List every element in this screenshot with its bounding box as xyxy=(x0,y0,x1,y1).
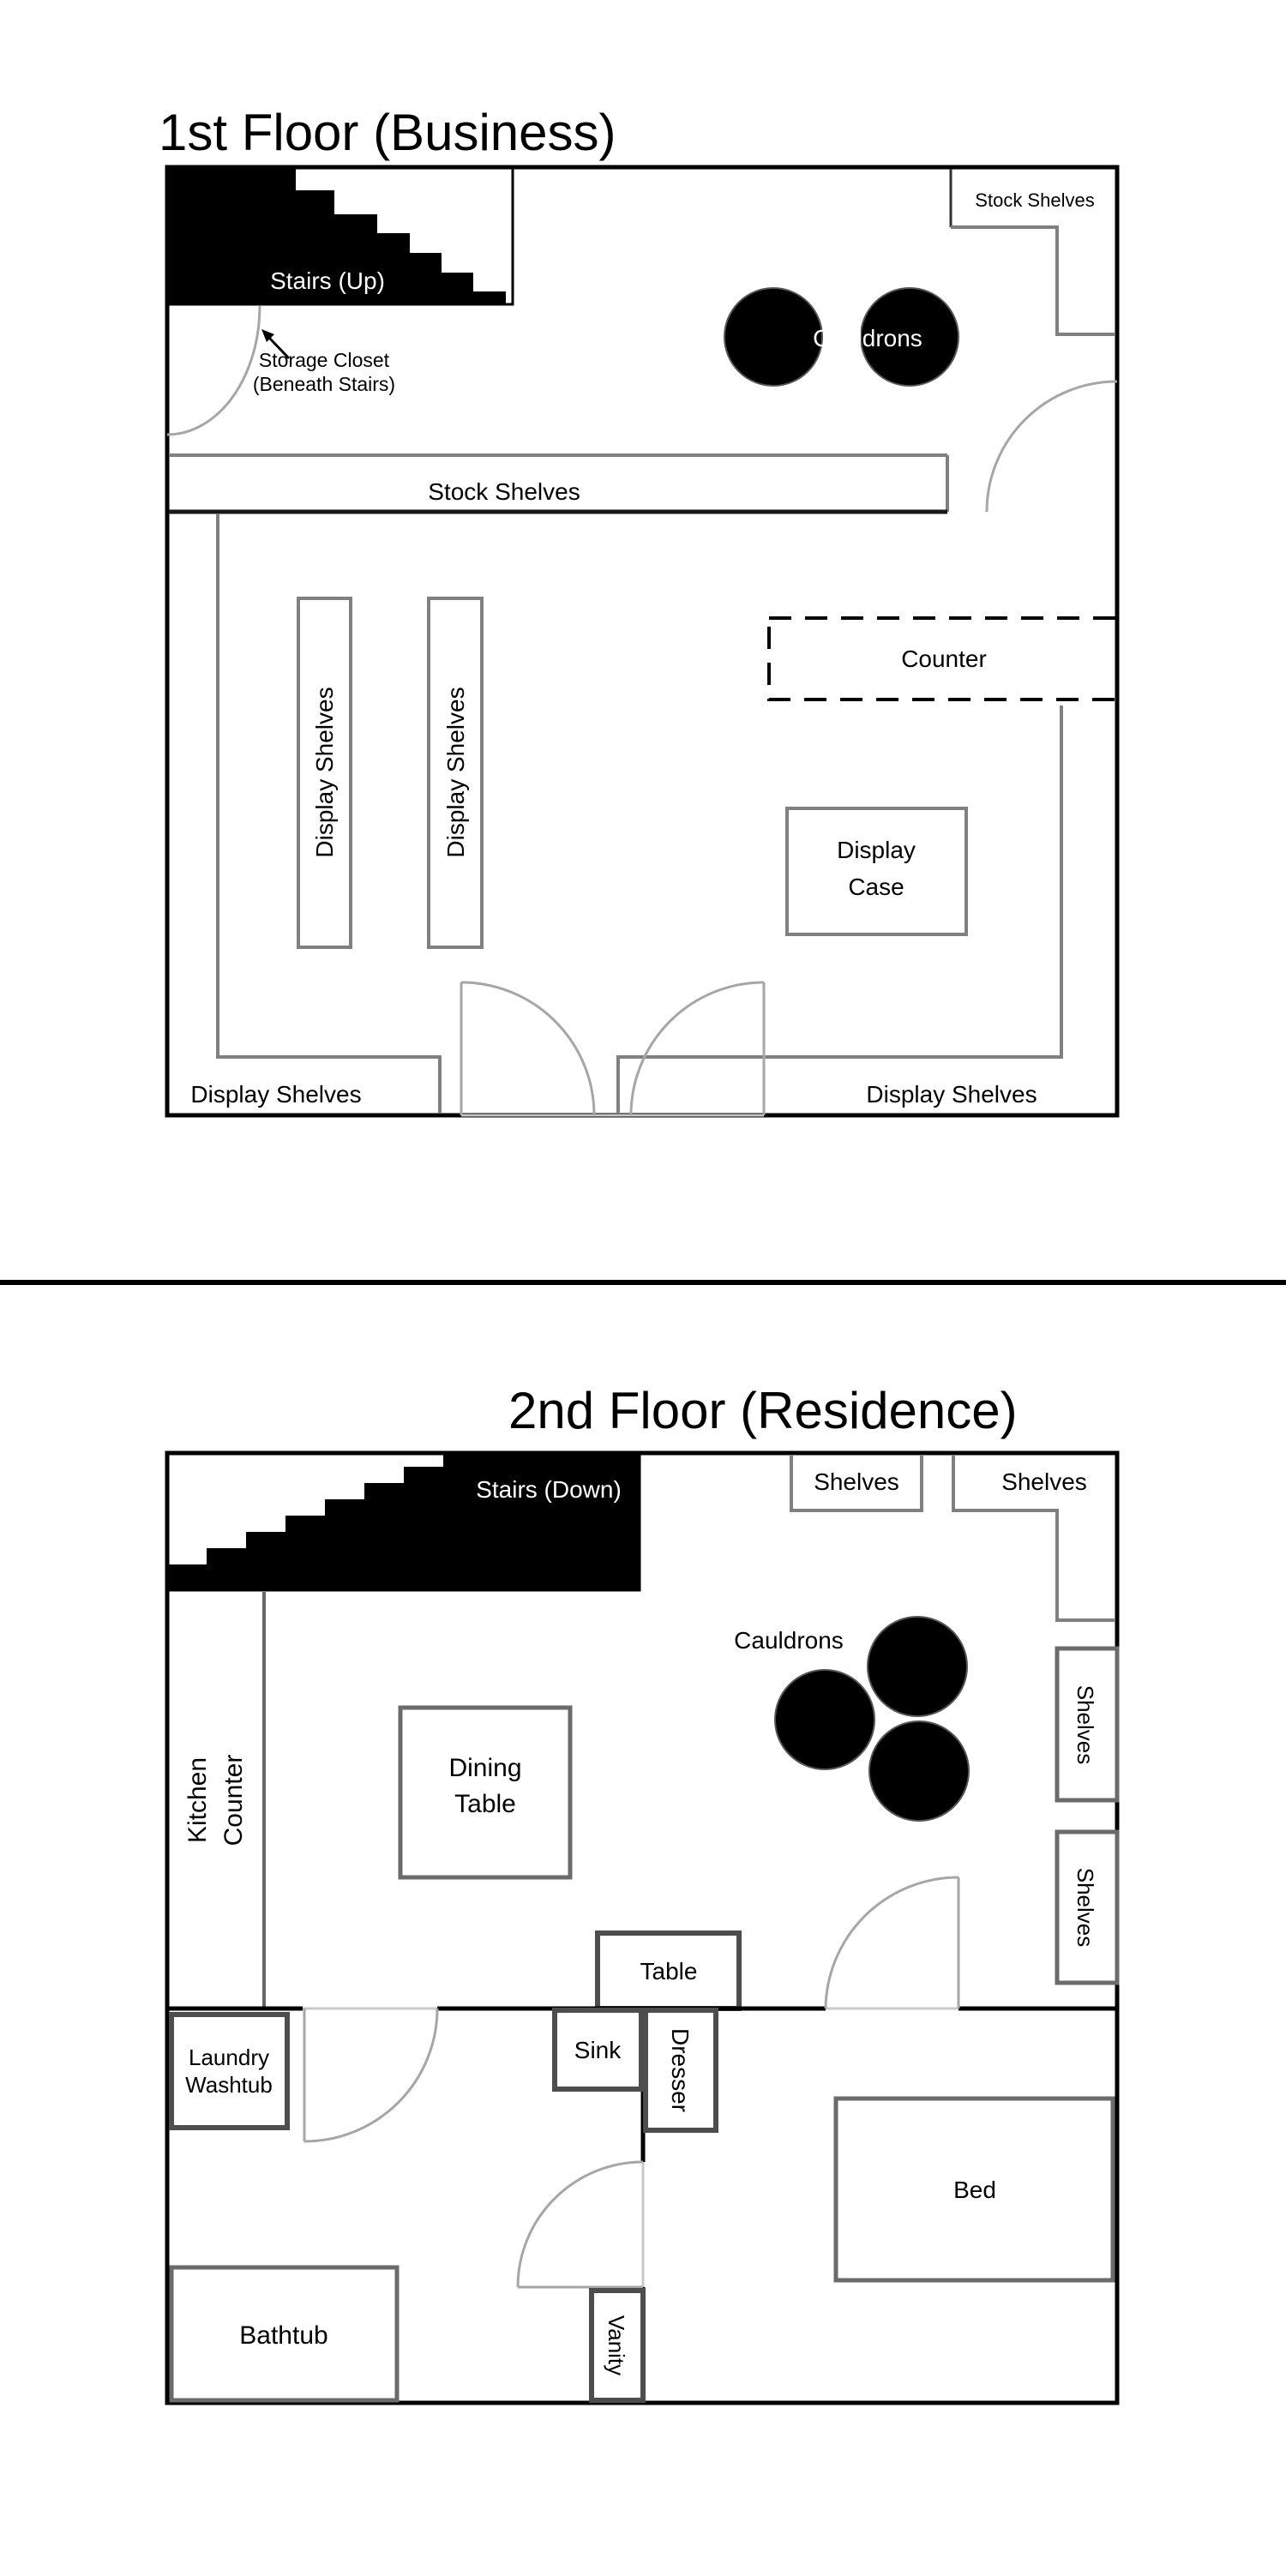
cauldrons-floor2: Cauldrons xyxy=(734,1617,969,1821)
storage-closet-label-line1: Storage Closet xyxy=(259,349,390,371)
shelves-top-left: Shelves xyxy=(791,1455,922,1510)
dining-table: Dining Table xyxy=(400,1708,570,1877)
entry-door-right-arc xyxy=(631,982,764,1115)
shelves-right-upper: Shelves xyxy=(1057,1648,1117,1800)
entry-double-door xyxy=(461,982,764,1115)
bed: Bed xyxy=(836,2099,1113,2280)
stock-shelves-corner-label: Stock Shelves xyxy=(975,189,1094,211)
floor-divider-line xyxy=(0,1280,1286,1285)
floor1-outer-wall xyxy=(167,167,1117,1115)
sink-label: Sink xyxy=(574,2037,622,2063)
storage-closet: Storage Closet (Beneath Stairs) xyxy=(167,306,395,435)
laundry-washtub-box xyxy=(171,2015,287,2128)
cauldron-circle xyxy=(869,1721,969,1821)
display-shelves-bottom-right-outline xyxy=(618,706,1061,1114)
laundry-washtub-label-line2: Washtub xyxy=(185,2072,273,2098)
bathtub: Bathtub xyxy=(171,2267,397,2400)
dining-table-label-line1: Dining xyxy=(448,1754,521,1782)
bathtub-label: Bathtub xyxy=(239,2321,328,2350)
stairs-up-label: Stairs (Up) xyxy=(270,267,385,294)
bathroom-door xyxy=(518,2162,643,2287)
floor2-title: 2nd Floor (Residence) xyxy=(508,1382,1018,1439)
floor1-plan: 1st Floor (Business) Stairs (Up) Storage… xyxy=(159,104,1117,1115)
display-shelves-bottom-left-label: Display Shelves xyxy=(190,1081,361,1108)
display-shelves-bottom-right-label: Display Shelves xyxy=(866,1081,1037,1108)
floor1-title: 1st Floor (Business) xyxy=(159,104,616,161)
display-shelves-vertical2: Display Shelves xyxy=(429,598,482,947)
kitchen-counter: Kitchen Counter xyxy=(183,1592,264,2009)
bathroom-door-arc xyxy=(518,2162,643,2287)
stock-shelves-band-label: Stock Shelves xyxy=(428,478,580,505)
cauldrons-floor1: Cauldrons xyxy=(724,288,958,386)
stairs-down: Stairs (Down) xyxy=(167,1453,640,1590)
display-shelves-vertical1: Display Shelves xyxy=(298,598,351,947)
bedroom-door xyxy=(826,1877,958,2009)
shelves-top-right-label: Shelves xyxy=(1001,1468,1087,1495)
shelves-top-left-label: Shelves xyxy=(814,1468,899,1495)
stairs-down-label: Stairs (Down) xyxy=(476,1476,622,1503)
display-shelves-vertical2-label: Display Shelves xyxy=(442,687,469,857)
cauldron-circle xyxy=(724,288,822,386)
bedroom-door-arc xyxy=(826,1877,958,2009)
vanity: Vanity xyxy=(592,2291,643,2400)
display-case: Display Case xyxy=(787,808,966,934)
floor2-plan: 2nd Floor (Residence) Stairs (Down) Shel… xyxy=(167,1382,1117,2403)
stock-shelves-band: Stock Shelves xyxy=(169,455,947,512)
stock-shelves-corner: Stock Shelves xyxy=(951,169,1115,334)
stairs-down-steps xyxy=(167,1453,640,1590)
cauldrons-floor1-label: Cauldrons xyxy=(813,325,922,351)
laundry-washtub-label-line1: Laundry xyxy=(189,2045,269,2070)
display-case-label-line2: Case xyxy=(848,874,904,900)
dining-table-label-line2: Table xyxy=(454,1790,516,1818)
storage-closet-label-line2: (Beneath Stairs) xyxy=(253,373,395,395)
kitchen-counter-label-line2: Counter xyxy=(219,1755,248,1846)
shelves-right-lower-label: Shelves xyxy=(1073,1868,1098,1948)
entry-door-left-arc xyxy=(461,982,594,1115)
counter-label: Counter xyxy=(901,646,987,672)
dresser: Dresser xyxy=(646,2010,716,2130)
stock-shelves-corner-outline xyxy=(951,227,1115,334)
laundry-door-arc xyxy=(304,2009,437,2141)
storage-closet-door-arc xyxy=(167,306,260,435)
cauldron-circle xyxy=(868,1617,967,1716)
small-table: Table xyxy=(598,1933,739,2009)
floor-plan-page: 1st Floor (Business) Stairs (Up) Storage… xyxy=(0,0,1286,2572)
bed-label: Bed xyxy=(953,2177,996,2203)
sink: Sink xyxy=(555,2010,641,2089)
kitchen-counter-label-line1: Kitchen xyxy=(183,1757,212,1843)
shelves-right-upper-label: Shelves xyxy=(1073,1685,1098,1765)
display-case-label-line1: Display xyxy=(837,837,916,863)
backroom-door-arc xyxy=(987,381,1117,512)
shelves-right-lower: Shelves xyxy=(1057,1832,1117,1983)
laundry-washtub: Laundry Washtub xyxy=(171,2015,287,2128)
small-table-label: Table xyxy=(640,1958,698,1985)
shelves-top-right: Shelves xyxy=(953,1455,1115,1620)
cauldrons-floor2-label: Cauldrons xyxy=(734,1627,844,1654)
display-shelves-vertical1-label: Display Shelves xyxy=(311,687,338,857)
dresser-label: Dresser xyxy=(667,2028,694,2112)
counter: Counter xyxy=(769,618,1117,700)
cauldron-circle xyxy=(775,1670,874,1769)
display-shelves-bottom-right: Display Shelves xyxy=(618,706,1061,1114)
laundry-room-door xyxy=(303,2009,437,2141)
floor-plan-canvas: 1st Floor (Business) Stairs (Up) Storage… xyxy=(0,0,1286,2572)
stairs-up: Stairs (Up) xyxy=(167,167,513,304)
vanity-label: Vanity xyxy=(604,2315,629,2375)
display-case-box xyxy=(787,808,966,934)
